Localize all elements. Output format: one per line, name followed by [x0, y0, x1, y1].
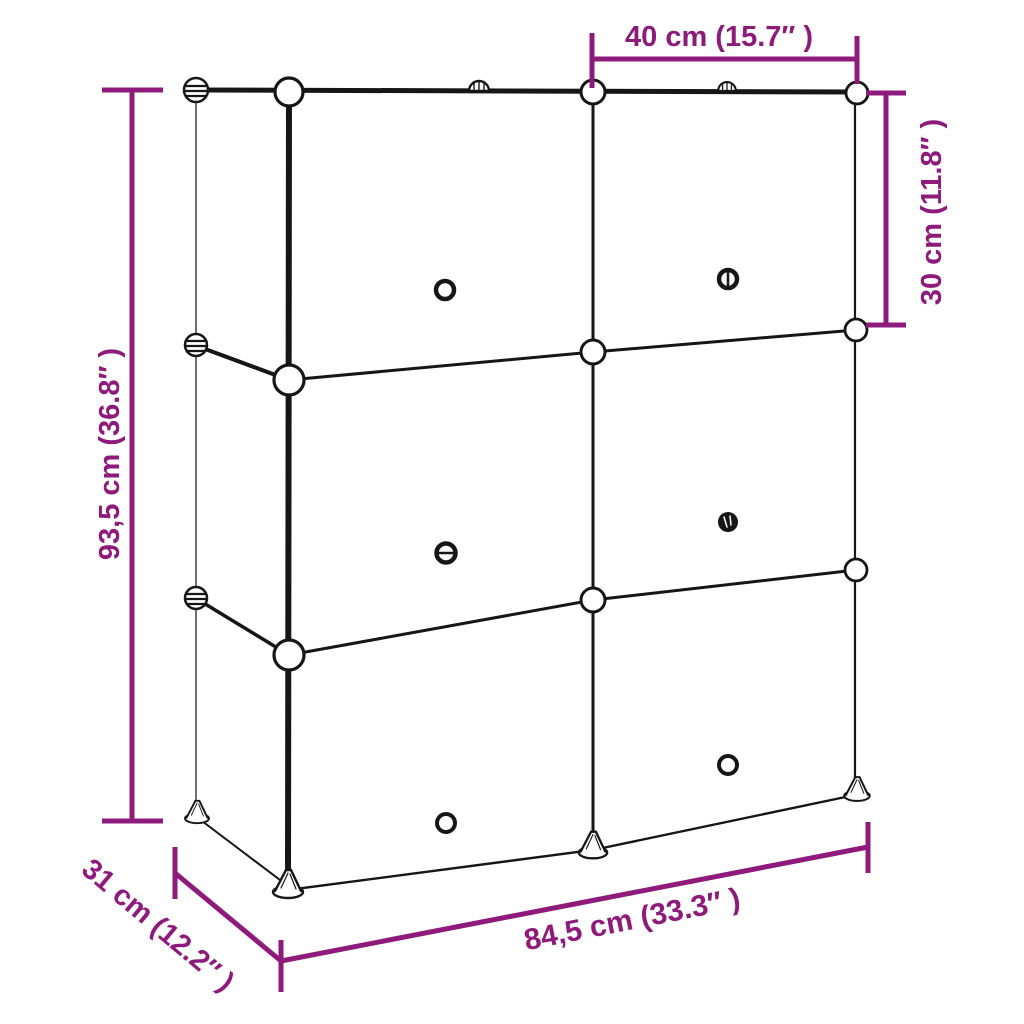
bottom-edge	[288, 795, 855, 890]
door-knob-middle-left	[437, 544, 456, 563]
label-cube-width: 40 cm (15.7″ )	[625, 21, 813, 53]
label-cube-height: 30 cm (11.8″ )	[916, 119, 948, 305]
top-dome-connector-1	[469, 81, 489, 91]
foot-back-left	[185, 801, 209, 823]
connector-ball	[845, 319, 867, 341]
connector-ball	[275, 78, 303, 106]
connector-ball	[581, 588, 605, 612]
foot-right	[844, 777, 870, 801]
shelf-line-2	[289, 570, 856, 655]
side-diagonal-3	[198, 818, 288, 886]
storage-unit-drawing	[184, 78, 870, 898]
dimension-total-width-lines	[281, 822, 868, 992]
front-left-edge	[288, 94, 289, 880]
connector-ball	[581, 340, 605, 364]
connector-ball	[846, 82, 868, 104]
shelf-line-1	[289, 330, 856, 380]
back-connector-ball-3	[185, 587, 207, 609]
back-connector-ball-1	[184, 78, 208, 102]
door-knob-top-right	[719, 270, 737, 288]
back-connector-ball-2	[185, 334, 207, 356]
label-total-height: 93,5 cm (36.8″ )	[94, 348, 126, 560]
connector-ball	[274, 365, 304, 395]
dimension-cube-height-lines	[866, 93, 906, 325]
dimension-labels: 40 cm (15.7″ ) 30 cm (11.8″ ) 93,5 cm (3…	[76, 21, 948, 998]
door-knob-bottom-right	[719, 756, 737, 774]
door-knob-middle-right	[718, 512, 738, 532]
connector-ball	[845, 559, 867, 581]
foot-front-left	[273, 870, 303, 898]
product-dimension-diagram: 40 cm (15.7″ ) 30 cm (11.8″ ) 93,5 cm (3…	[0, 0, 1024, 1024]
label-depth: 31 cm (12.2″ )	[76, 853, 241, 998]
top-dome-connector-2	[718, 82, 736, 91]
dimension-lines	[102, 33, 906, 992]
foot-middle	[579, 832, 608, 859]
door-knob-bottom-left	[437, 814, 455, 832]
diagram-canvas: 40 cm (15.7″ ) 30 cm (11.8″ ) 93,5 cm (3…	[0, 0, 1024, 1024]
door-knob-top-left	[436, 281, 454, 299]
connector-ball	[274, 640, 304, 670]
